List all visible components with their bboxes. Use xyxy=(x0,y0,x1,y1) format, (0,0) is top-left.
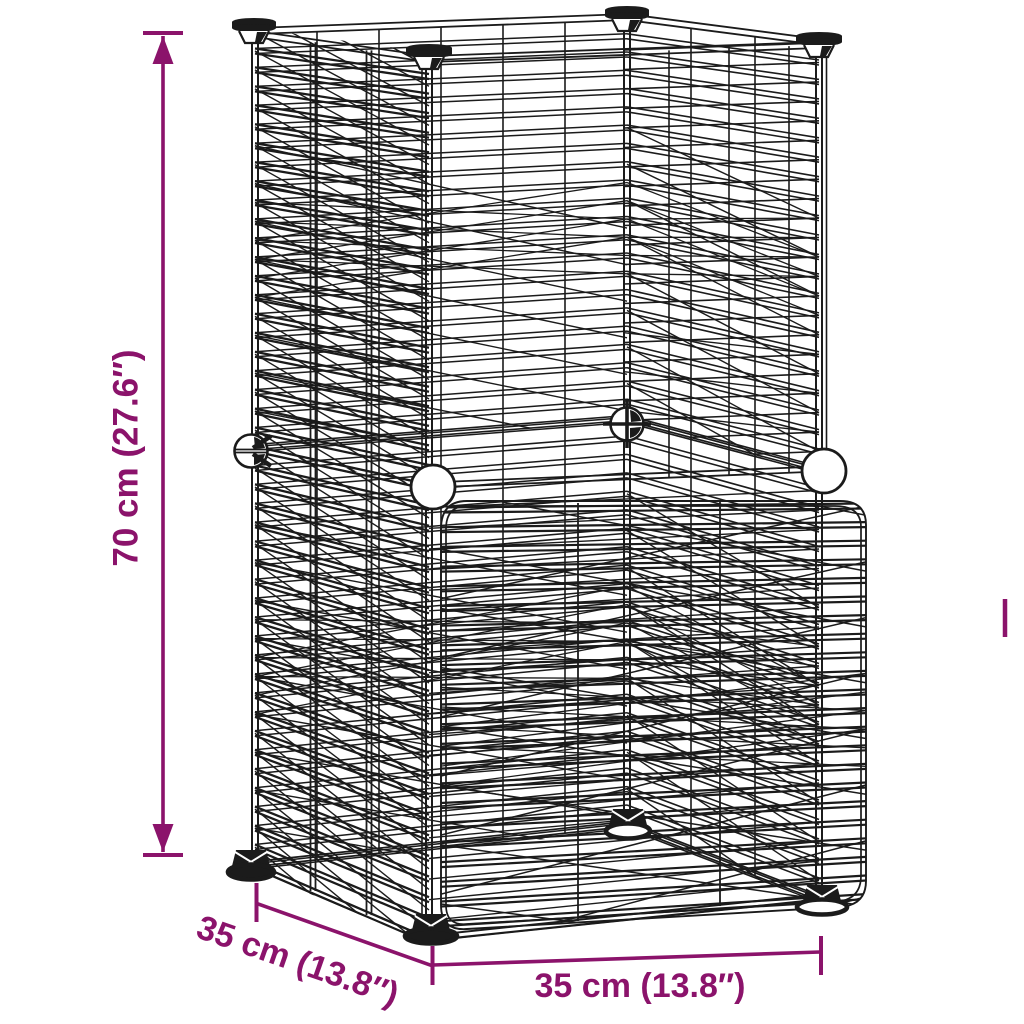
svg-text:35 cm (13.8″): 35 cm (13.8″) xyxy=(535,967,746,1005)
svg-text:70 cm (27.6″): 70 cm (27.6″) xyxy=(106,349,145,566)
